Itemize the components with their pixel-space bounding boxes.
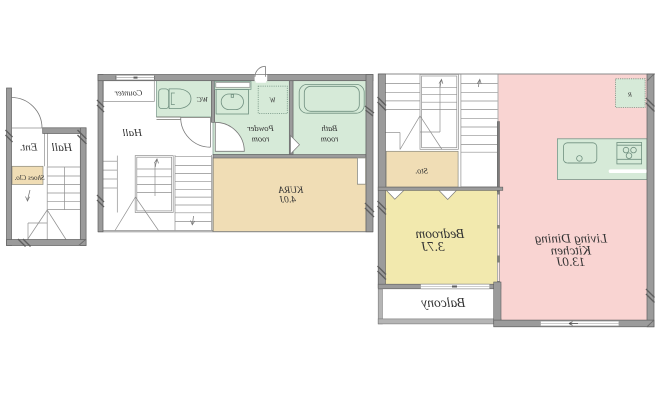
svg-text:KURA: KURA xyxy=(278,186,304,196)
svg-text:Shoes Clo.: Shoes Clo. xyxy=(14,174,44,182)
svg-text:Sto.: Sto. xyxy=(415,166,428,176)
svg-text:Balcony: Balcony xyxy=(421,295,465,310)
svg-text:Counter: Counter xyxy=(114,87,143,97)
svg-text:room: room xyxy=(252,134,270,144)
svg-text:WC: WC xyxy=(196,95,208,104)
svg-text:3.7J: 3.7J xyxy=(421,239,446,254)
svg-text:4.0J: 4.0J xyxy=(279,195,296,205)
svg-text:R: R xyxy=(628,91,633,98)
svg-text:13.0J: 13.0J xyxy=(556,254,586,269)
svg-text:Hall: Hall xyxy=(123,127,144,139)
svg-text:Bath: Bath xyxy=(321,123,337,133)
svg-text:room: room xyxy=(321,134,339,144)
svg-text:Powder: Powder xyxy=(247,123,275,133)
svg-text:Hall: Hall xyxy=(52,142,73,154)
svg-text:Ent.: Ent. xyxy=(19,141,38,153)
